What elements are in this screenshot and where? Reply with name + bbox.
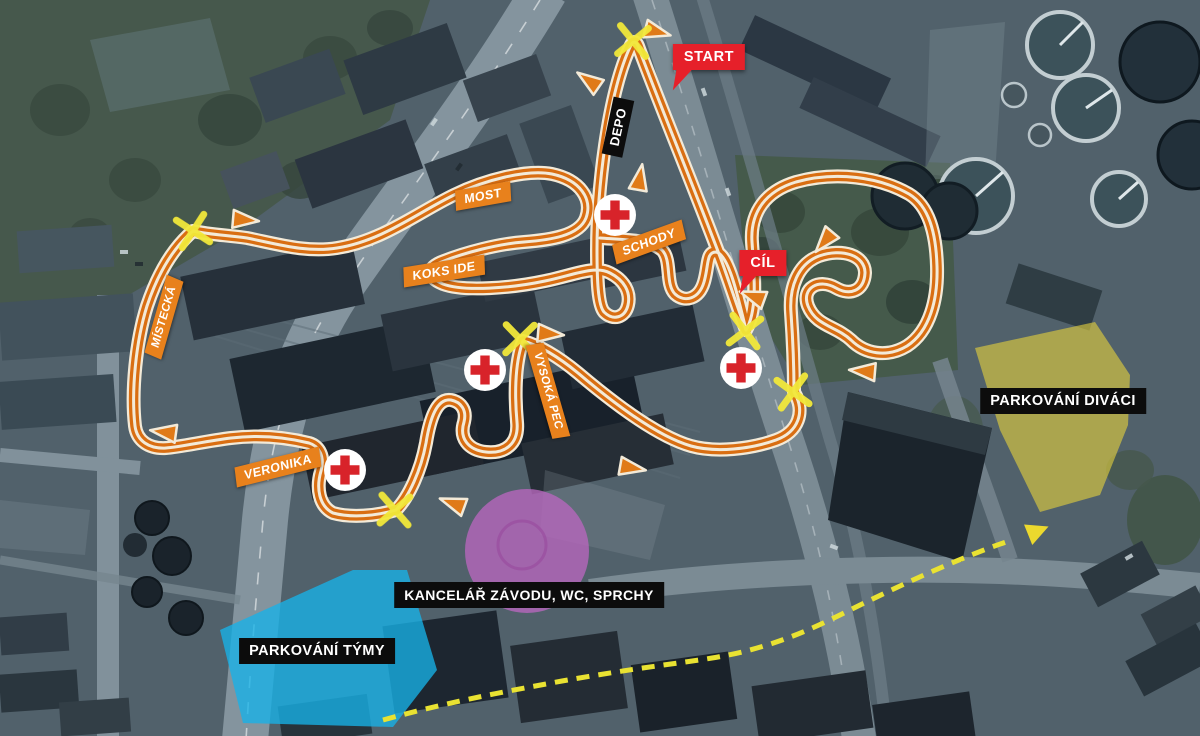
first-aid-icon: [720, 347, 762, 389]
team-parking-label: PARKOVÁNÍ TÝMY: [239, 638, 395, 664]
first-aid-icon: [594, 194, 636, 236]
race-office-label: KANCELÁŘ ZÁVODU, WC, SPRCHY: [394, 582, 664, 608]
start-flag: START: [673, 44, 745, 70]
spectator-parking-label: PARKOVÁNÍ DIVÁCI: [980, 388, 1146, 414]
race-course-map: START CÍL DEPO MOST SCHODY KOKS IDE MÍST…: [0, 0, 1200, 736]
finish-flag-text: CÍL: [750, 255, 775, 271]
start-flag-text: START: [684, 49, 734, 65]
first-aid-icon: [464, 349, 506, 391]
map-canvas: [0, 0, 1200, 736]
first-aid-icon: [324, 449, 366, 491]
finish-flag: CÍL: [739, 250, 786, 276]
